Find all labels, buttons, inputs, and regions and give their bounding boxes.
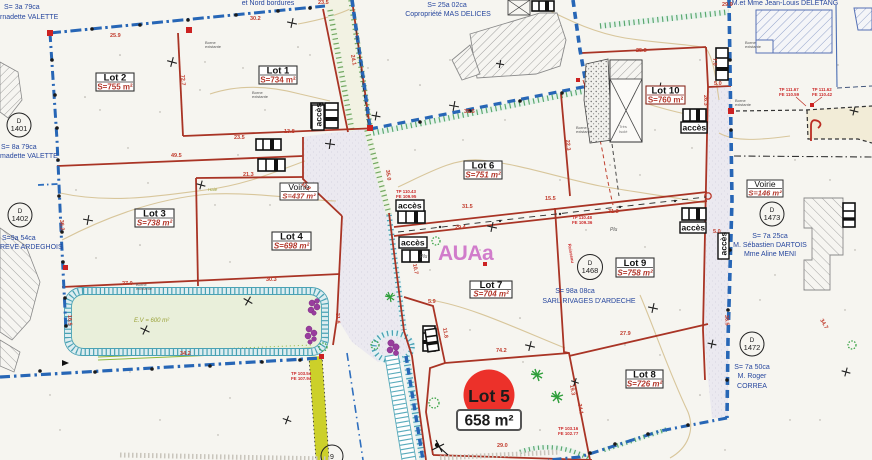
svg-text:existante: existante (735, 102, 752, 107)
svg-text:13.8: 13.8 (284, 129, 295, 135)
svg-text:25.9: 25.9 (110, 33, 121, 39)
svg-text:29.0: 29.0 (497, 443, 508, 449)
svg-text:S=758 m²: S=758 m² (617, 269, 653, 278)
svg-text:S=734 m²: S=734 m² (260, 76, 296, 85)
svg-text:30.3: 30.3 (266, 277, 277, 283)
svg-text:S= 25a 02ca: S= 25a 02ca (427, 2, 467, 9)
svg-text:Plu: Plu (420, 254, 427, 260)
svg-text:5.9: 5.9 (428, 299, 436, 305)
svg-text:Haie: Haie (208, 187, 218, 192)
svg-text:27.0: 27.0 (122, 281, 133, 287)
svg-text:16.5: 16.5 (66, 315, 73, 326)
svg-text:FE 109.36: FE 109.36 (572, 220, 593, 225)
svg-text:M. Sébastien DARTOIS: M. Sébastien DARTOIS (733, 242, 807, 249)
svg-text:Copropriété MAS DELICES: Copropriété MAS DELICES (405, 11, 491, 18)
svg-text:M.et Mme Jean-Louis DELETANG: M.et Mme Jean-Louis DELETANG (732, 0, 838, 7)
svg-text:S= 3a 79ca: S= 3a 79ca (4, 4, 40, 11)
svg-text:S=751 m²: S=751 m² (465, 171, 501, 180)
svg-text:Plu: Plu (610, 227, 617, 233)
svg-text:AUAa: AUAa (438, 242, 494, 265)
svg-text:5.0: 5.0 (713, 229, 721, 235)
svg-text:25.3: 25.3 (636, 48, 647, 54)
svg-text:S=704 m²: S=704 m² (473, 290, 509, 299)
svg-text:31.6: 31.6 (334, 313, 341, 324)
svg-text:72.7: 72.7 (179, 75, 186, 86)
svg-text:accès: accès (682, 223, 706, 233)
svg-text:rnadette VALETTE: rnadette VALETTE (0, 14, 59, 21)
svg-text:1468: 1468 (582, 266, 599, 275)
svg-text:5.0: 5.0 (714, 81, 722, 87)
svg-text:FE 102.77: FE 102.77 (558, 431, 579, 436)
svg-text:accès: accès (398, 201, 422, 211)
svg-text:existante: existante (576, 129, 593, 134)
svg-text:Mme Aline MENI: Mme Aline MENI (744, 251, 796, 258)
svg-text:1402: 1402 (12, 214, 29, 223)
svg-text:29.9: 29.9 (722, 2, 733, 8)
svg-text:existante: existante (136, 286, 153, 291)
svg-text:23.5: 23.5 (318, 0, 329, 6)
svg-text:accès: accès (314, 103, 324, 127)
svg-text:Isolé: Isolé (619, 129, 628, 134)
svg-text:REVE ARDEGHOIS: REVE ARDEGHOIS (0, 244, 63, 251)
svg-text:existante: existante (252, 94, 269, 99)
svg-text:S=738 m²: S=738 m² (137, 219, 173, 228)
svg-text:Lot 5: Lot 5 (468, 386, 510, 406)
svg-text:36.2: 36.2 (58, 220, 65, 231)
svg-text:7.0: 7.0 (711, 58, 717, 66)
svg-text:SARL RIVAGES D'ARDECHE: SARL RIVAGES D'ARDECHE (542, 298, 635, 305)
svg-text:FE 107.94: FE 107.94 (291, 376, 312, 381)
svg-text:existante: existante (745, 44, 762, 49)
svg-text:S=760 m²: S=760 m² (648, 96, 684, 105)
svg-text:1473: 1473 (764, 213, 781, 222)
svg-text:49.5: 49.5 (171, 153, 182, 159)
svg-text:15.5: 15.5 (545, 196, 556, 202)
svg-text:1401: 1401 (11, 124, 28, 133)
svg-text:Voirie: Voirie (754, 179, 776, 189)
svg-text:26.3: 26.3 (702, 95, 708, 106)
svg-text:31.3: 31.3 (608, 209, 619, 215)
svg-text:S=437 m²: S=437 m² (282, 192, 316, 201)
svg-text:S= 7a 25ca: S= 7a 25ca (752, 233, 788, 240)
svg-text:1472: 1472 (744, 343, 761, 352)
svg-text:658 m²: 658 m² (464, 413, 513, 430)
svg-text:accès: accès (683, 123, 707, 133)
svg-text:S=726 m²: S=726 m² (627, 380, 663, 389)
svg-text:S= 7a 50ca: S= 7a 50ca (734, 364, 770, 371)
svg-text:34.2: 34.2 (180, 351, 191, 357)
svg-text:23.5: 23.5 (234, 135, 245, 141)
svg-text:30.2: 30.2 (250, 16, 261, 22)
svg-text:S=9a 54ca: S=9a 54ca (2, 235, 36, 242)
svg-text:35.5: 35.5 (464, 109, 475, 115)
svg-text:FE 109.95: FE 109.95 (396, 194, 417, 199)
svg-text:S= 8a 79ca: S= 8a 79ca (1, 144, 37, 151)
svg-text:S=755 m²: S=755 m² (97, 83, 133, 92)
svg-text:31.5: 31.5 (462, 204, 473, 210)
svg-text:S=698 m²: S=698 m² (274, 242, 310, 251)
svg-text:M. Roger: M. Roger (738, 373, 767, 380)
svg-text:9: 9 (330, 454, 334, 460)
svg-text:accès: accès (719, 232, 729, 256)
svg-text:madette VALETTE: madette VALETTE (0, 153, 58, 160)
svg-text:FE 110.59: FE 110.59 (779, 92, 800, 97)
svg-text:existante: existante (205, 44, 222, 49)
svg-text:FE 110.42: FE 110.42 (812, 92, 833, 97)
svg-text:Lot 9: Lot 9 (624, 258, 647, 269)
svg-text:S=146 m²: S=146 m² (748, 189, 782, 198)
svg-text:21.3: 21.3 (243, 172, 254, 178)
svg-text:S= 98a 08ca: S= 98a 08ca (555, 288, 595, 295)
svg-text:et Nord bordures: et Nord bordures (242, 0, 295, 7)
svg-text:CORREA: CORREA (737, 383, 767, 390)
svg-text:29.4: 29.4 (455, 225, 467, 231)
svg-text:E.V = 600 m²: E.V = 600 m² (134, 318, 170, 324)
svg-text:74.2: 74.2 (496, 348, 507, 354)
svg-text:accès: accès (401, 238, 425, 248)
svg-text:36.5: 36.5 (723, 315, 730, 326)
svg-text:22.3: 22.3 (564, 140, 571, 151)
svg-text:27.9: 27.9 (620, 331, 631, 337)
